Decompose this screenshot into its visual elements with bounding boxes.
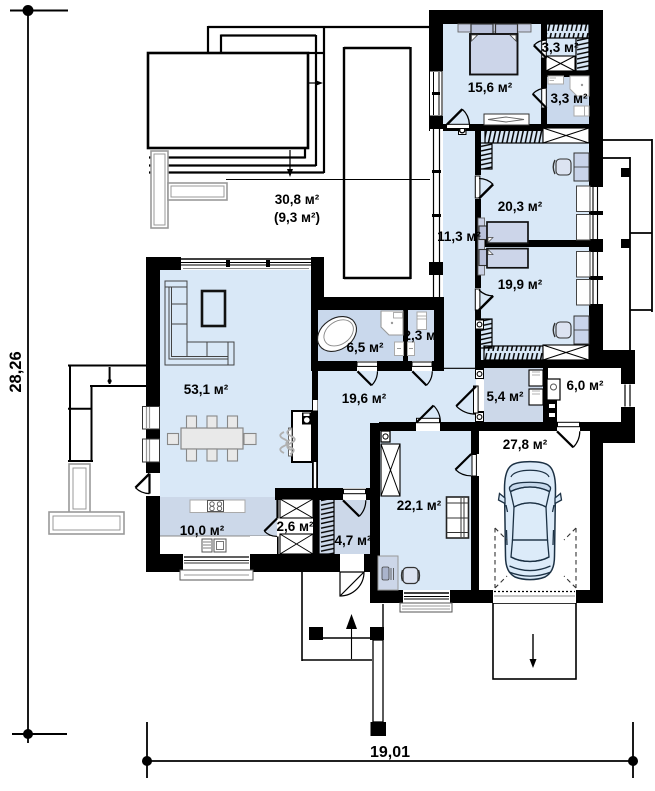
svg-text:6,0 м²: 6,0 м² — [567, 378, 605, 393]
svg-text:22,1 м²: 22,1 м² — [397, 498, 442, 513]
svg-text:19,9 м²: 19,9 м² — [498, 277, 543, 292]
svg-text:6,5 м²: 6,5 м² — [347, 340, 385, 355]
svg-text:10,0 м²: 10,0 м² — [180, 523, 225, 538]
svg-text:3,3 м²: 3,3 м² — [551, 91, 589, 106]
svg-text:19,6 м²: 19,6 м² — [342, 391, 387, 406]
svg-text:28,26: 28,26 — [7, 351, 25, 392]
svg-text:11,3 м²: 11,3 м² — [437, 229, 481, 244]
svg-text:2,6 м²: 2,6 м² — [277, 519, 315, 534]
svg-text:5,4 м²: 5,4 м² — [487, 389, 525, 404]
svg-text:2,3 м²: 2,3 м² — [404, 328, 442, 343]
svg-text:4,7 м²: 4,7 м² — [335, 533, 373, 548]
svg-text:3,3 м²: 3,3 м² — [542, 40, 580, 55]
svg-text:19,01: 19,01 — [370, 744, 410, 761]
svg-text:15,6 м²: 15,6 м² — [468, 80, 513, 95]
svg-text:53,1 м²: 53,1 м² — [184, 382, 229, 397]
svg-text:30,8 м²: 30,8 м² — [275, 192, 320, 207]
svg-text:(9,3 м²): (9,3 м²) — [274, 210, 320, 225]
svg-text:27,8 м²: 27,8 м² — [503, 437, 548, 452]
svg-text:20,3 м²: 20,3 м² — [498, 199, 543, 214]
